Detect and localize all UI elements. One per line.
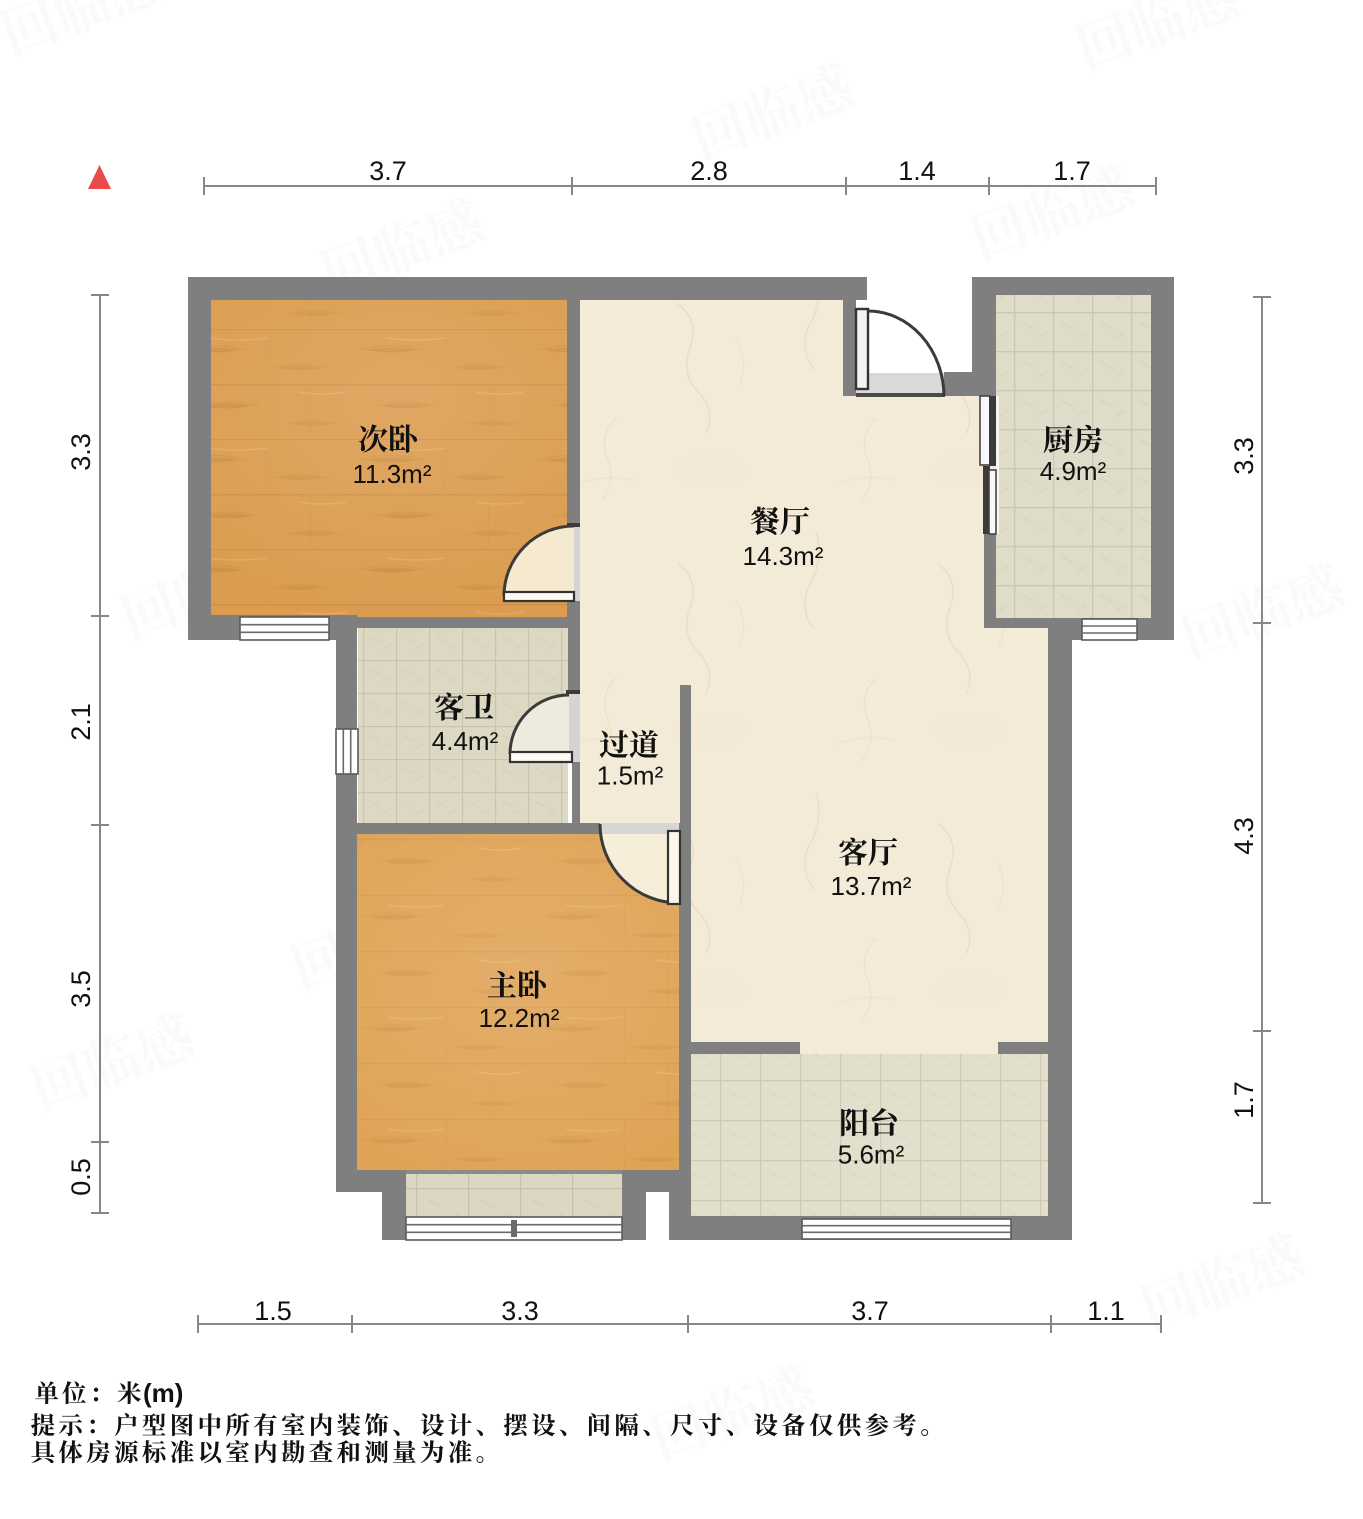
svg-text:1.5m²: 1.5m²: [597, 761, 664, 791]
svg-text:1.1: 1.1: [1087, 1296, 1125, 1326]
svg-text:3.3: 3.3: [501, 1296, 539, 1326]
svg-text:3.7: 3.7: [851, 1296, 889, 1326]
svg-text:12.2m²: 12.2m²: [479, 1003, 560, 1033]
svg-text:0.5: 0.5: [66, 1158, 96, 1196]
svg-text:2.1: 2.1: [66, 703, 96, 741]
svg-text:13.7m²: 13.7m²: [831, 871, 912, 901]
svg-text:11.3m²: 11.3m²: [353, 459, 432, 489]
svg-text:3.5: 3.5: [66, 970, 96, 1008]
svg-text:14.3m²: 14.3m²: [743, 541, 824, 571]
svg-text:1.7: 1.7: [1229, 1081, 1259, 1119]
svg-text:3.7: 3.7: [369, 156, 407, 186]
svg-text:4.3: 4.3: [1229, 817, 1259, 855]
svg-text:2.8: 2.8: [690, 156, 728, 186]
svg-text:1.7: 1.7: [1053, 156, 1091, 186]
svg-text:4.4m²: 4.4m²: [432, 726, 499, 756]
svg-text:5.6m²: 5.6m²: [838, 1140, 905, 1170]
svg-text:3.3: 3.3: [66, 433, 96, 471]
svg-text:3.3: 3.3: [1229, 437, 1259, 475]
svg-text:(m): (m): [143, 1378, 183, 1408]
svg-text:1.4: 1.4: [898, 156, 936, 186]
svg-text:1.5: 1.5: [254, 1296, 292, 1326]
svg-text:4.9m²: 4.9m²: [1040, 456, 1107, 486]
